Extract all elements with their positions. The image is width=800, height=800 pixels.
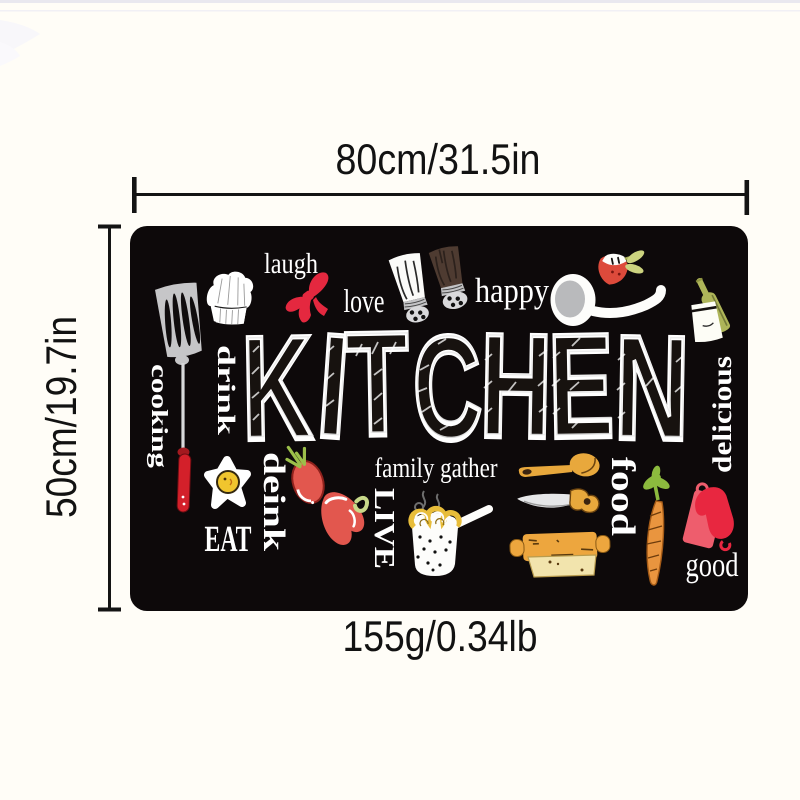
svg-text:good: good	[686, 547, 739, 584]
svg-text:LIVE: LIVE	[368, 488, 400, 569]
svg-text:C: C	[411, 306, 485, 468]
svg-text:drink: drink	[212, 345, 239, 435]
svg-text:K: K	[241, 306, 314, 467]
svg-text:deink: deink	[257, 452, 292, 552]
svg-text:family gather: family gather	[375, 453, 499, 484]
svg-text:laugh: laugh	[264, 248, 318, 280]
svg-text:155g/0.34lb: 155g/0.34lb	[343, 613, 538, 661]
svg-text:50cm/19.7in: 50cm/19.7in	[38, 316, 86, 518]
svg-text:food: food	[604, 457, 641, 536]
svg-text:H: H	[479, 304, 553, 465]
svg-text:T: T	[345, 303, 411, 464]
svg-text:cooking: cooking	[146, 364, 172, 469]
svg-text:80cm/31.5in: 80cm/31.5in	[336, 136, 541, 184]
svg-text:EAT: EAT	[205, 519, 252, 560]
svg-text:delicious: delicious	[707, 356, 737, 473]
svg-text:E: E	[548, 305, 616, 466]
